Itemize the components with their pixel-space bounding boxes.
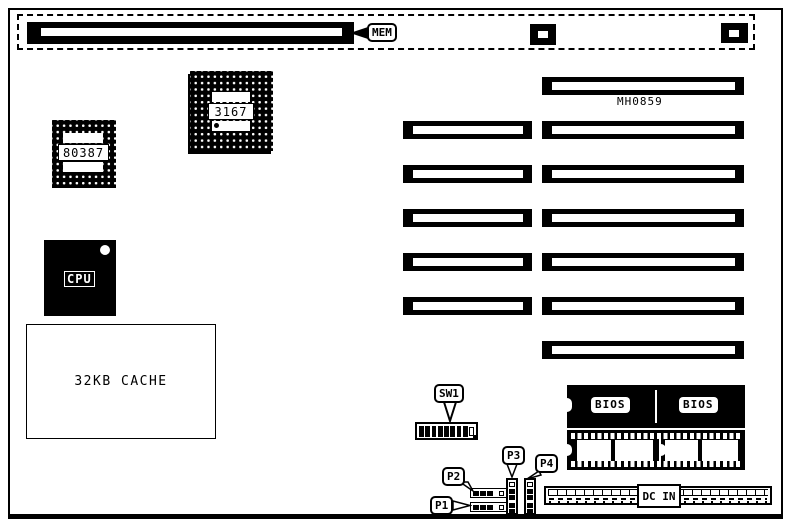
power-pin-strip: DC IN [544, 486, 772, 505]
cpu-chip: CPU [44, 240, 116, 316]
coprocessor-80387-label: 80387 [58, 144, 109, 161]
socket-notch [567, 444, 572, 456]
bios-divider [655, 390, 657, 423]
p1-pointer-icon [452, 500, 472, 512]
coprocessor-80387-chip: 80387 [52, 120, 116, 188]
expansion-slot [403, 121, 532, 139]
p1-connector [470, 502, 507, 512]
chip-bottom-plate [63, 162, 103, 172]
slot-inner-stripe [413, 302, 523, 310]
p4-callout: P4 [535, 454, 558, 473]
dip-switch-sw1 [415, 422, 478, 440]
sw1-callout: SW1 [434, 384, 464, 403]
sw1-pointer-icon [442, 401, 458, 423]
mem-callout: MEM [367, 23, 397, 42]
cache-label: 32KB CACHE [74, 374, 167, 389]
bios-chip-block: BIOS BIOS [567, 385, 745, 428]
dip-switch-position-on [419, 426, 424, 437]
slot-inner-stripe [413, 126, 523, 134]
connector-pin [509, 495, 515, 500]
p3-callout: P3 [502, 446, 525, 465]
bios-left-notch [567, 398, 572, 412]
slot-inner-stripe [552, 82, 735, 90]
connector-pin [487, 491, 493, 496]
dip-switch-position-on [444, 426, 449, 437]
jumper-block [530, 24, 556, 45]
chip-top-plate [212, 92, 250, 102]
socket-chip [702, 440, 738, 461]
expansion-slot [542, 297, 744, 315]
connector-pin [509, 503, 515, 508]
dip-corner-dot [473, 435, 478, 440]
slot-inner-stripe [552, 302, 735, 310]
chipset-3167-label: 3167 [208, 103, 254, 120]
chip-top-plate [63, 133, 103, 143]
connector-pin [473, 505, 479, 510]
connector-pin [527, 495, 533, 500]
expansion-slot [403, 165, 532, 183]
connector-pin [509, 489, 515, 494]
socket-pins-bottom [571, 461, 741, 467]
jumper-slot [729, 30, 739, 37]
socket-chip [615, 440, 653, 461]
p1-callout: P1 [430, 496, 453, 515]
socket-pins-top [571, 433, 741, 439]
dip-switch-position-on [457, 426, 462, 437]
expansion-slot [542, 121, 744, 139]
connector-pin [487, 505, 493, 510]
motherboard-diagram: MEM 3167 80387 CPU 32KB CACHE MH0859 SW1 [0, 0, 791, 527]
bios-label-left: BIOS [591, 397, 630, 413]
slot-inner-stripe [552, 346, 735, 354]
slot-inner-stripe [413, 170, 523, 178]
connector-pin-open [499, 505, 504, 510]
expansion-slot [542, 77, 744, 95]
expansion-slot [542, 341, 744, 359]
bios-label-right: BIOS [679, 397, 718, 413]
cache-box: 32KB CACHE [26, 324, 216, 439]
expansion-slot [403, 209, 532, 227]
slot-inner-stripe [552, 258, 735, 266]
dip-switch-position-on [432, 426, 437, 437]
slot-inner-stripe [413, 214, 523, 222]
dip-switch-position-on [463, 426, 468, 437]
memory-slot-stripe [41, 28, 342, 36]
p2-callout: P2 [442, 467, 465, 486]
socket-chip [577, 440, 611, 461]
connector-pin [527, 503, 533, 508]
memory-slot [27, 22, 354, 44]
expansion-slot [403, 253, 532, 271]
p2-connector [470, 488, 507, 498]
slot-inner-stripe [552, 126, 735, 134]
pin1-dot-icon [100, 245, 110, 255]
p4-connector [524, 478, 536, 515]
mem-arrow-icon [350, 26, 368, 40]
eprom-socket-row [567, 430, 745, 470]
board-id-text: MH0859 [617, 95, 663, 108]
jumper-slot [538, 31, 548, 38]
expansion-slot [542, 165, 744, 183]
connector-pin-open [527, 482, 533, 487]
cpu-label: CPU [64, 271, 95, 287]
expansion-slot [542, 253, 744, 271]
dip-switch-position-on [450, 426, 455, 437]
slot-inner-stripe [552, 214, 735, 222]
slot-inner-stripe [552, 170, 735, 178]
connector-pin [527, 509, 533, 514]
chip-bottom-plate [212, 121, 250, 131]
jumper-block [721, 23, 748, 43]
p3-connector [506, 478, 518, 515]
socket-chip [665, 440, 698, 461]
dc-in-label: DC IN [637, 484, 681, 508]
dip-switch-position-on [425, 426, 430, 437]
connector-pin [480, 491, 486, 496]
expansion-slot [542, 209, 744, 227]
connector-pin-open [509, 482, 515, 487]
p3-pointer-icon [505, 463, 519, 479]
slot-inner-stripe [413, 258, 523, 266]
connector-pin [480, 505, 486, 510]
connector-pin-open [499, 491, 504, 496]
expansion-slot [403, 297, 532, 315]
pin1-dot-icon [214, 123, 219, 128]
chipset-3167-chip: 3167 [190, 71, 273, 151]
connector-pin [527, 489, 533, 494]
dip-switch-position-on [438, 426, 443, 437]
connector-pin [509, 509, 515, 514]
